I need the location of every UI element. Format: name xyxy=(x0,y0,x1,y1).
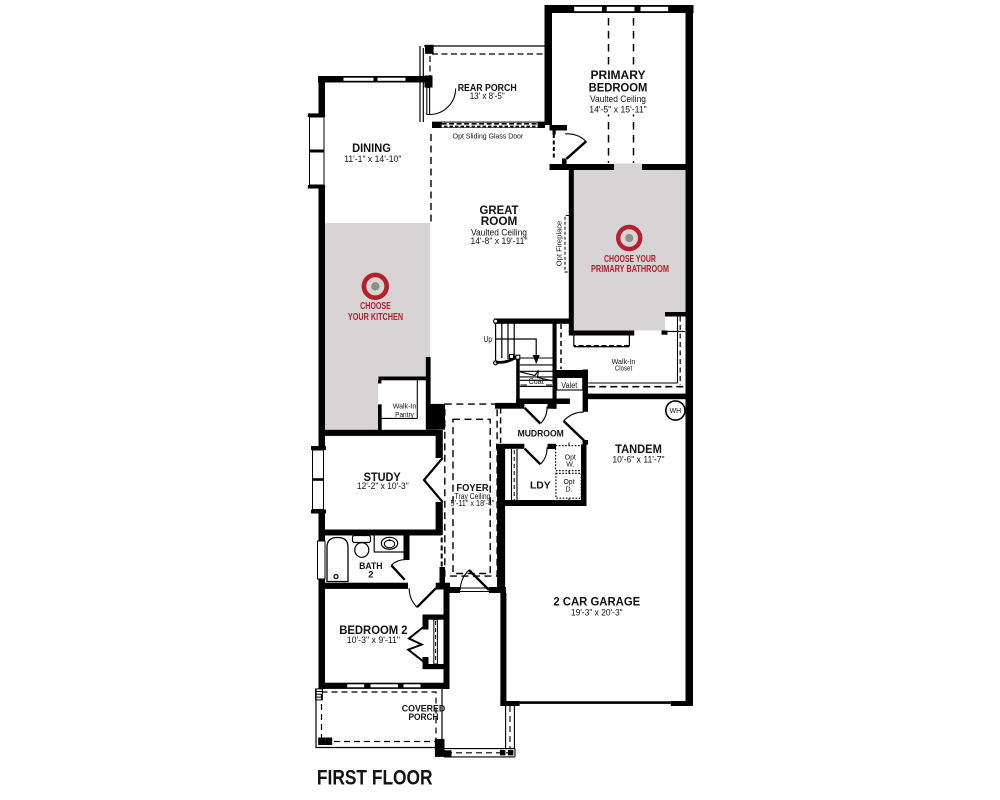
svg-text:12'-2" x 10'-3": 12'-2" x 10'-3" xyxy=(357,481,409,491)
svg-text:ROOM: ROOM xyxy=(481,215,518,228)
svg-text:5'-11" x 18'-4": 5'-11" x 18'-4" xyxy=(451,499,495,508)
svg-text:Valet: Valet xyxy=(561,381,578,390)
svg-text:YOUR KITCHEN: YOUR KITCHEN xyxy=(348,312,403,323)
svg-text:MUDROOM: MUDROOM xyxy=(518,428,564,439)
svg-text:D.: D. xyxy=(566,487,573,494)
svg-text:BEDROOM: BEDROOM xyxy=(589,80,648,94)
svg-text:W.: W. xyxy=(566,462,574,469)
svg-text:CHOOSE: CHOOSE xyxy=(360,301,391,312)
svg-text:10'-6" x 11'-7": 10'-6" x 11'-7" xyxy=(612,454,664,464)
svg-text:2 CAR GARAGE: 2 CAR GARAGE xyxy=(553,594,640,608)
svg-text:Vaulted Ceiling: Vaulted Ceiling xyxy=(590,94,646,104)
svg-text:Closet: Closet xyxy=(615,364,632,373)
svg-text:Opt: Opt xyxy=(564,479,575,486)
svg-text:2: 2 xyxy=(368,570,373,580)
svg-text:FIRST FLOOR: FIRST FLOOR xyxy=(317,765,433,790)
svg-text:10'-3" x 9'-11": 10'-3" x 9'-11" xyxy=(347,635,400,645)
svg-text:11'-1" x 14'-10": 11'-1" x 14'-10" xyxy=(344,154,401,164)
svg-text:13' x 8'-5": 13' x 8'-5" xyxy=(470,91,505,101)
svg-text:Coat: Coat xyxy=(529,377,545,386)
svg-text:WH: WH xyxy=(670,406,682,415)
svg-text:14'-8" x 19'-11": 14'-8" x 19'-11" xyxy=(471,236,528,246)
svg-text:Opt Sliding Glass Door: Opt Sliding Glass Door xyxy=(453,132,524,141)
svg-text:PRIMARY BATHROOM: PRIMARY BATHROOM xyxy=(591,264,669,275)
svg-text:Opt Fireplace: Opt Fireplace xyxy=(557,221,564,267)
svg-text:LDY: LDY xyxy=(530,481,551,492)
svg-text:Pantry: Pantry xyxy=(395,410,414,419)
svg-text:Opt: Opt xyxy=(565,454,576,461)
svg-text:19'-3" x 20'-3": 19'-3" x 20'-3" xyxy=(571,607,623,617)
svg-text:14'-5" x 15'-11": 14'-5" x 15'-11" xyxy=(589,104,647,114)
svg-text:PORCH: PORCH xyxy=(409,712,439,722)
svg-text:Up: Up xyxy=(484,335,493,344)
